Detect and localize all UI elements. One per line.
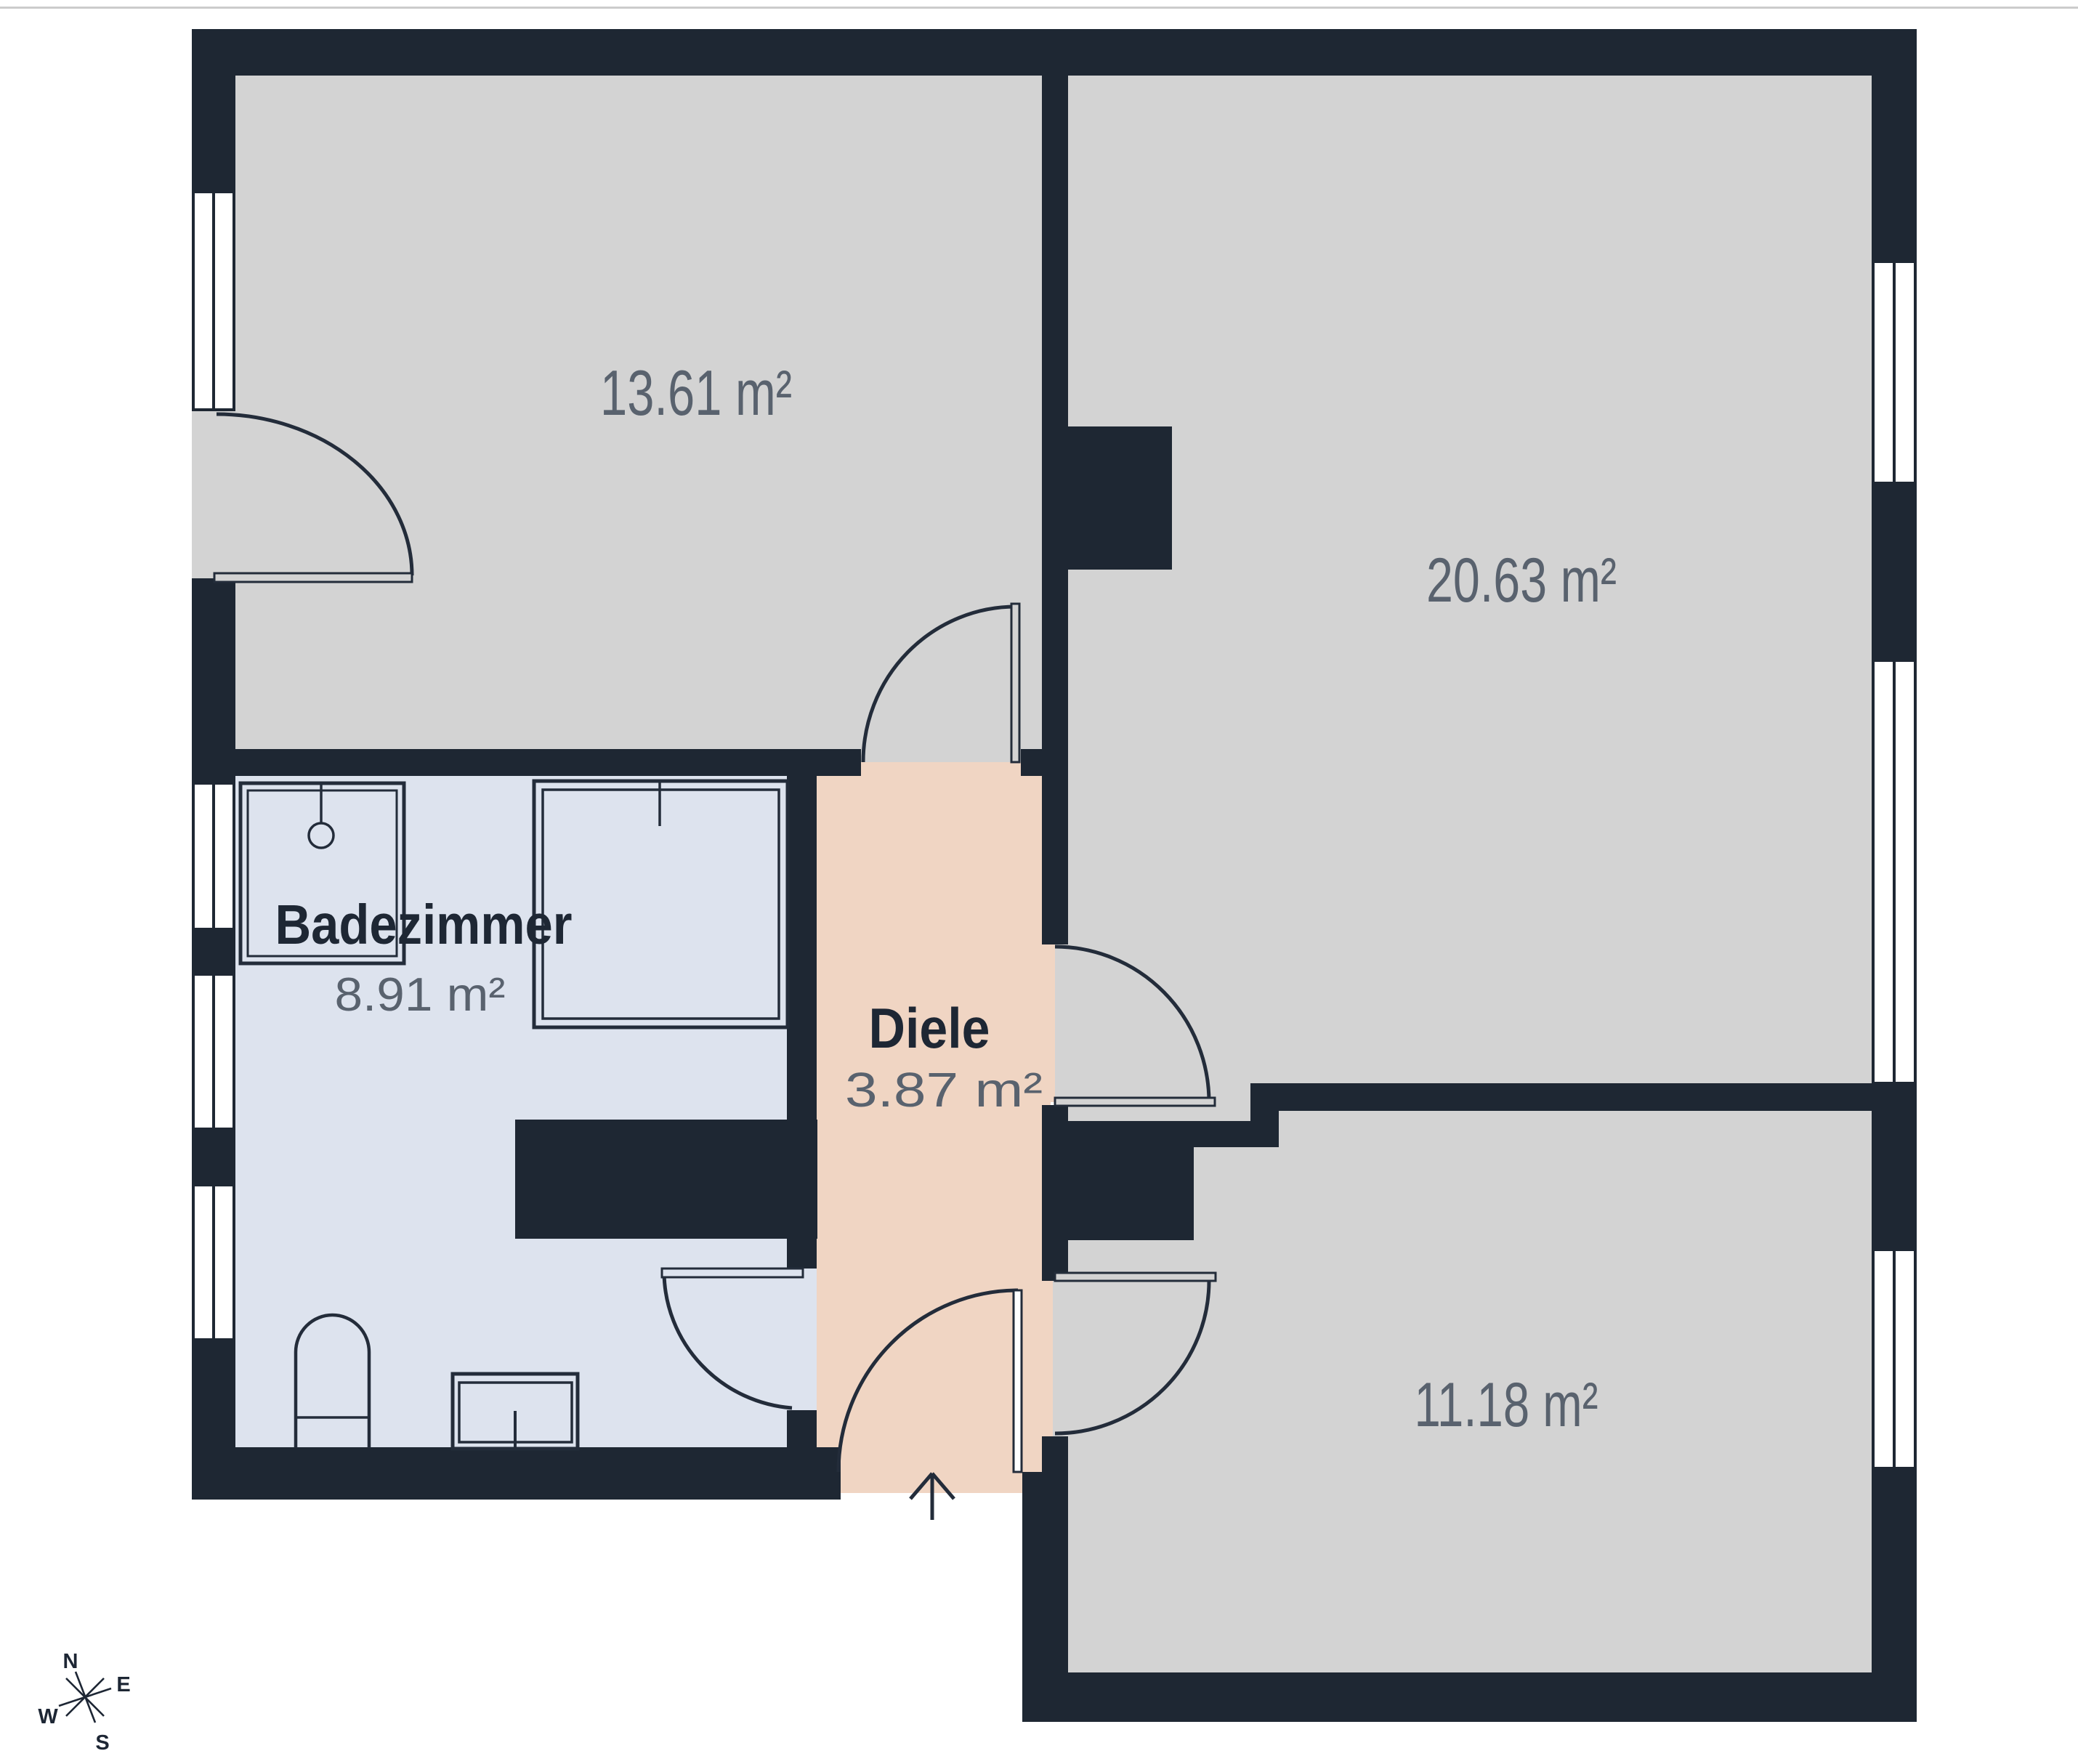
svg-text:E: E: [116, 1673, 130, 1696]
svg-text:11.18 m²: 11.18 m²: [1415, 1370, 1598, 1440]
svg-text:W: W: [38, 1705, 58, 1728]
svg-text:20.63 m²: 20.63 m²: [1426, 546, 1617, 615]
svg-text:Diele: Diele: [869, 996, 990, 1060]
svg-text:S: S: [95, 1731, 109, 1755]
svg-text:3.87 m²: 3.87 m²: [845, 1063, 1043, 1117]
svg-text:13.61 m²: 13.61 m²: [600, 357, 792, 429]
svg-text:Badezimmer: Badezimmer: [275, 894, 573, 956]
svg-text:N: N: [63, 1650, 78, 1673]
svg-text:8.91 m²: 8.91 m²: [335, 968, 506, 1021]
